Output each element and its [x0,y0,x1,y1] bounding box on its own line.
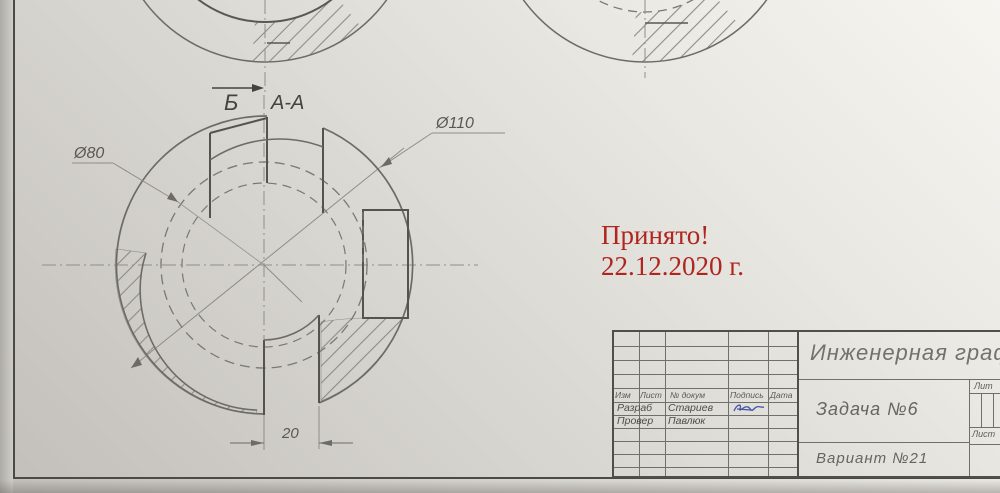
bottom-slot [264,315,319,415]
task-number: Задача №6 [816,399,919,420]
dia80-label: Ø80 [73,145,104,162]
photographed-engineering-drawing: { "drawing": { "cut_label": "Б", "sectio… [0,0,1000,493]
name-developed: Стариев [668,402,713,414]
paper-edge-shadow-bottom [0,480,1000,493]
stamp-line2: 22.12.2020 г. [601,251,744,282]
right-slot [363,210,408,318]
dim20-label: 20 [281,425,299,442]
hatch-lower-left [115,249,257,414]
top-partial-view-right [495,0,795,78]
dia110-label: Ø110 [435,115,474,132]
lit-label: Лит [974,381,993,391]
variant-number: Вариант №21 [816,450,928,467]
top-slot [210,117,323,218]
title-block: Изм Лист № докум Подпись Дата Разраб Ста… [612,330,1000,478]
cut-label: Б [224,90,238,115]
stamp-line1: Принято! [601,220,744,251]
col-izm: Изм [615,390,631,400]
name-checked: Павлюк [668,415,705,427]
col-doc-no: № докум [670,390,705,400]
col-list: Лист [640,390,662,400]
section-view-label: А-А [270,92,304,114]
dimension-dia110: Ø110 [381,115,505,167]
hatch-lower-right [321,318,403,401]
cut-arrow-icon [252,84,264,92]
role-checked: Провер [617,415,653,427]
doc-title: Инженерная графика [810,340,1000,366]
role-developed: Разраб [617,402,652,414]
acceptance-stamp: Принято! 22.12.2020 г. [601,220,744,281]
sheet-frame-left [13,0,15,479]
signature [731,402,766,415]
sheet-label: Лист [972,429,995,439]
col-sign: Подпись [730,390,764,400]
section-labels: Б А-А [212,84,304,115]
col-date: Дата [770,390,792,400]
dimension-dia80: Ø80 [72,145,264,265]
top-partial-view-left [115,0,415,95]
main-section-view [42,95,478,450]
